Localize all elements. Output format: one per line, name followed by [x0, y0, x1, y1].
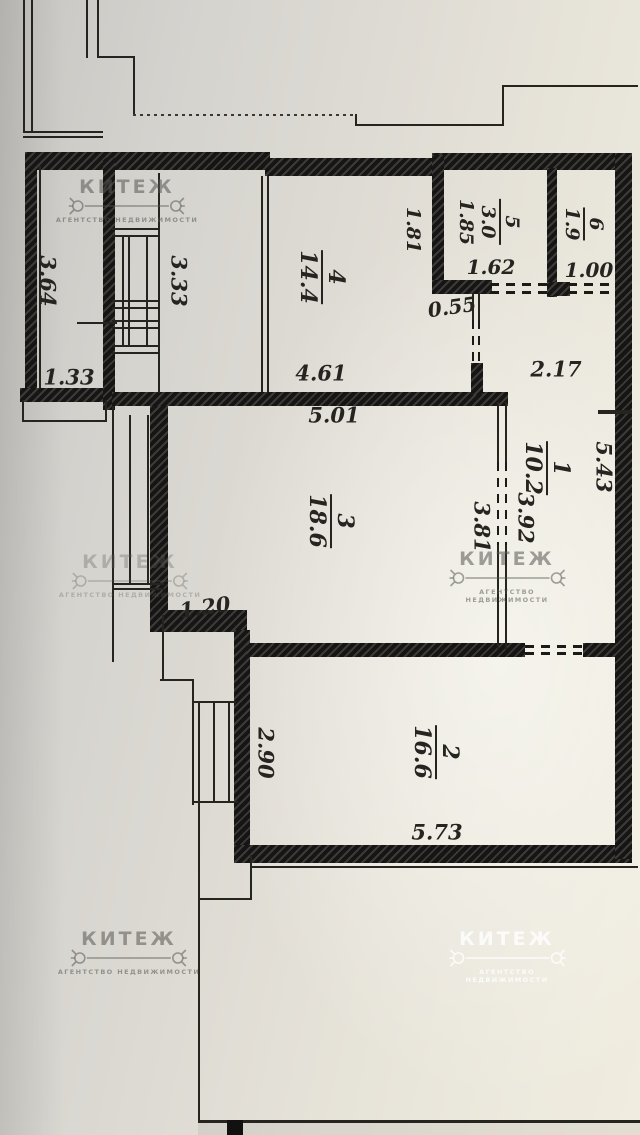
lower-stair-line [160, 679, 194, 681]
passage-opening-dashed [478, 320, 480, 365]
passage-wall-line [478, 293, 480, 320]
corridor-door-dashed [525, 645, 583, 648]
room-area: 1.9 [561, 207, 583, 240]
corridor-wall-line [497, 402, 499, 462]
stair-section-line [77, 322, 117, 324]
outline-line [97, 0, 99, 58]
room6-door-dashed [568, 283, 614, 286]
room-number: 5 [499, 199, 523, 245]
room-label-5: 5 3.0 1.85 [455, 199, 523, 245]
outline-line [86, 0, 88, 58]
wall-room5-left [432, 155, 444, 293]
stair-tread [112, 320, 160, 322]
lower-stair-tread [213, 703, 215, 803]
stair-shaft-line [112, 406, 114, 662]
lower-stair-tread [198, 703, 200, 803]
outline-line [23, 136, 103, 138]
dim-4-61: 4.61 [295, 361, 346, 386]
bottom-line [198, 803, 200, 1122]
room-area: 16.6 [409, 725, 435, 779]
balcony-line-below-room2 [252, 866, 638, 868]
room5-door-dashed [490, 291, 547, 294]
outline-line [97, 56, 135, 58]
balcony-ext-line [22, 400, 24, 422]
stair-tread [112, 300, 160, 302]
stair-tread [112, 228, 160, 230]
outline-line [502, 87, 504, 126]
stair-rail [122, 236, 124, 346]
room-area: 18.6 [304, 494, 330, 548]
stair-shaft-right-edge [158, 173, 160, 393]
wall-top-room4 [265, 158, 434, 176]
dim-5-43: 5.43 [592, 441, 617, 492]
outline-dotted-line [133, 114, 355, 116]
stair-tread [112, 352, 160, 354]
dim-5-73: 5.73 [411, 820, 462, 845]
wall-top-left [25, 152, 270, 170]
corridor-wall-line [505, 545, 507, 650]
corridor-wall-line [497, 545, 499, 650]
outline-line [355, 124, 504, 126]
room-label-6: 6 1.9 [561, 207, 607, 240]
stair-shaft-line [129, 415, 131, 585]
room-area: 10.2 [520, 441, 546, 495]
wall-corridor-corner-stub [471, 363, 483, 395]
bottom-edge-shade [198, 1123, 640, 1135]
outline-line [31, 0, 33, 133]
room-dimension: 1.85 [455, 199, 477, 245]
room6-door-dashed [568, 291, 614, 294]
bottom-edge-line [198, 1120, 640, 1123]
wall-bottom [234, 845, 632, 863]
room-label-1: 1 10.2 [520, 441, 574, 495]
room-label-3: 3 18.6 [304, 494, 358, 548]
wall-stair-left [103, 158, 115, 410]
stair-rail [146, 236, 148, 346]
room-area: 14.4 [295, 250, 321, 304]
room-number: 1 [546, 441, 574, 495]
dim-3-64: 3.64 [36, 255, 61, 306]
balcony-ext-line [105, 400, 107, 422]
dim-1-81: 1.81 [402, 207, 424, 253]
stair-shaft-bottom [112, 583, 164, 585]
dim-5-01: 5.01 [308, 403, 359, 428]
room4-divider [261, 176, 263, 392]
dim-2-90: 2.90 [254, 727, 279, 778]
dim-2-17: 2.17 [530, 357, 581, 382]
outline-line [502, 85, 638, 87]
corridor-wall-line [505, 402, 507, 462]
stair-rail [128, 236, 130, 346]
stair-shaft-bottom [112, 588, 164, 590]
dim-1-62: 1.62 [467, 255, 516, 279]
room4-divider [267, 176, 269, 392]
stair-tread [112, 235, 160, 237]
wall-corridor-bottom-right [583, 643, 617, 657]
outline-line [133, 56, 135, 116]
dim-3-92: 3.92 [514, 492, 539, 543]
room-number: 6 [583, 207, 607, 240]
corridor-door-dashed [525, 652, 583, 655]
floor-plan: 4 14.4 5 3.0 1.85 6 1.9 1 10.2 3 18.6 2 … [0, 0, 640, 1135]
dim-3-33: 3.33 [167, 255, 192, 306]
lower-stair-tread [228, 703, 230, 803]
balcony-ext-line [22, 420, 107, 422]
room-number: 4 [321, 250, 349, 304]
stair-tread [112, 307, 160, 309]
wall-outer-right [615, 153, 632, 859]
room-area: 3.0 [477, 199, 499, 245]
bottom-line [250, 855, 252, 900]
bottom-wall-block [227, 1120, 243, 1135]
wall-room5-bottom-stub [432, 280, 492, 294]
wall-top-rooms-5-6 [432, 153, 630, 170]
wall-room6-bottom-stub [547, 282, 570, 296]
corridor-opening-dashed [505, 462, 507, 545]
wall-corridor-bottom-left [247, 643, 525, 657]
room-number: 3 [330, 494, 358, 548]
lower-stair-line [192, 681, 194, 805]
right-wall-dimension-tick [598, 410, 632, 414]
stair-shaft-line [147, 415, 149, 585]
wall-rooms-5-6-divider [547, 168, 557, 297]
lower-stair-line [162, 615, 164, 681]
dim-1-00: 1.00 [565, 258, 614, 282]
passage-opening-dashed [472, 320, 474, 365]
corridor-opening-dashed [497, 462, 499, 545]
outline-line [23, 131, 103, 133]
wall-balcony-bottom [20, 388, 112, 402]
room-label-4: 4 14.4 [295, 250, 349, 304]
stair-tread [112, 327, 160, 329]
dim-1-33: 1.33 [43, 365, 94, 390]
dim-3-81: 3.81 [470, 501, 495, 552]
room5-door-dashed [490, 283, 547, 286]
wall-room2-left [234, 630, 250, 855]
stair-tread [112, 345, 160, 347]
bottom-line [198, 898, 250, 900]
room-label-2: 2 16.6 [409, 725, 463, 779]
outline-line [23, 0, 25, 133]
room-number: 2 [435, 725, 463, 779]
